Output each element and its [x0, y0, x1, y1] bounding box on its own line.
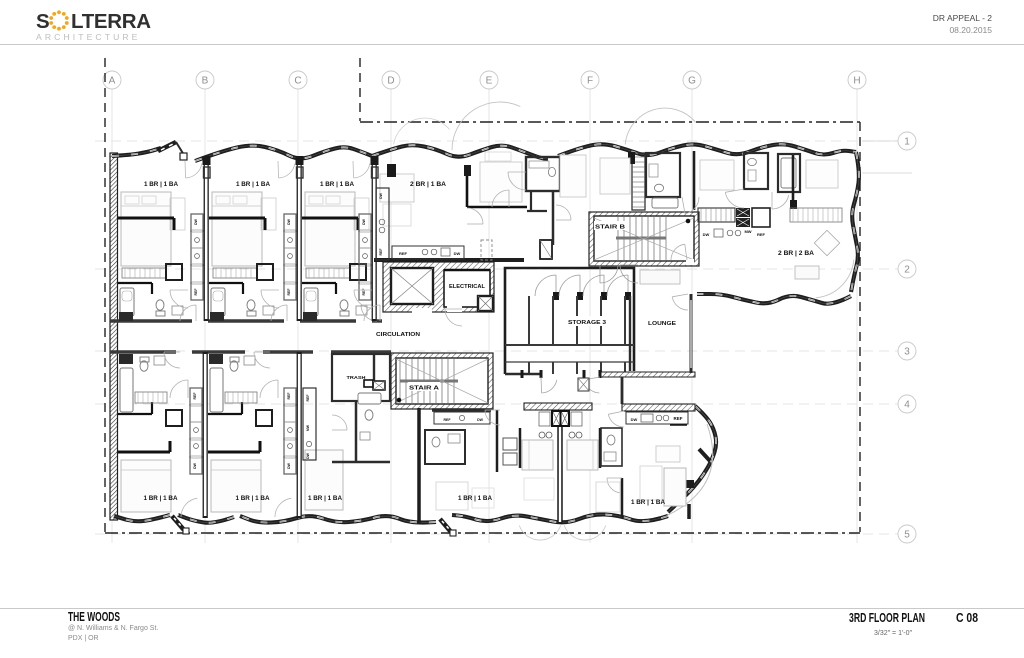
- svg-text:3RD FLOOR PLAN: 3RD FLOOR PLAN: [849, 611, 925, 625]
- svg-text:1 BR | 1 BA: 1 BR | 1 BA: [308, 495, 342, 502]
- svg-text:MW: MW: [306, 424, 310, 431]
- svg-text:G: G: [688, 76, 696, 87]
- svg-text:DW: DW: [703, 232, 710, 237]
- svg-text:DW: DW: [477, 418, 484, 422]
- svg-text:4: 4: [904, 400, 910, 411]
- svg-text:STAIR B: STAIR B: [595, 225, 625, 231]
- svg-text:REF: REF: [362, 288, 366, 296]
- svg-text:DW: DW: [193, 462, 197, 469]
- svg-text:LTERRA: LTERRA: [71, 10, 151, 33]
- svg-text:@ N. Williams & N. Fargo St.: @ N. Williams & N. Fargo St.: [68, 625, 158, 632]
- svg-text:1 BR | 1 BA: 1 BR | 1 BA: [236, 495, 270, 502]
- svg-text:PDX | OR: PDX | OR: [68, 635, 99, 642]
- svg-text:DW: DW: [362, 218, 366, 225]
- svg-text:STAIR A: STAIR A: [409, 386, 440, 392]
- svg-text:1 BR | 1 BA: 1 BR | 1 BA: [631, 499, 665, 506]
- svg-text:REF: REF: [757, 232, 766, 237]
- svg-text:MW: MW: [744, 229, 751, 234]
- svg-text:F: F: [587, 76, 593, 87]
- svg-text:1: 1: [904, 137, 910, 148]
- svg-text:REF: REF: [306, 394, 310, 402]
- svg-text:1 BR | 1 BA: 1 BR | 1 BA: [320, 181, 354, 188]
- svg-text:A: A: [109, 76, 116, 87]
- svg-text:STORAGE 3: STORAGE 3: [568, 320, 606, 326]
- svg-text:DW: DW: [379, 192, 383, 199]
- svg-text:3: 3: [904, 347, 910, 358]
- svg-text:5: 5: [904, 530, 910, 541]
- svg-text:REF: REF: [674, 416, 683, 421]
- svg-text:REF: REF: [399, 251, 408, 256]
- svg-text:REF: REF: [287, 392, 291, 400]
- svg-text:C: C: [294, 76, 301, 87]
- svg-text:THE WOODS: THE WOODS: [68, 610, 120, 624]
- svg-text:DW: DW: [306, 452, 310, 459]
- svg-text:REF: REF: [287, 288, 291, 296]
- svg-text:1 BR | 1 BA: 1 BR | 1 BA: [458, 495, 492, 502]
- svg-text:1 BR | 1 BA: 1 BR | 1 BA: [144, 181, 178, 188]
- svg-text:3/32″ = 1′-0″: 3/32″ = 1′-0″: [874, 630, 913, 637]
- svg-text:REF: REF: [194, 288, 198, 296]
- svg-text:REF: REF: [444, 418, 452, 422]
- svg-text:DW: DW: [194, 218, 198, 225]
- svg-text:LOUNGE: LOUNGE: [648, 321, 676, 327]
- svg-text:DW: DW: [454, 251, 461, 256]
- svg-text:DR APPEAL - 2: DR APPEAL - 2: [933, 13, 992, 23]
- svg-text:ELECTRICAL: ELECTRICAL: [449, 284, 485, 290]
- svg-text:REF: REF: [379, 248, 383, 256]
- svg-text:TRASH: TRASH: [347, 375, 367, 381]
- svg-text:DW: DW: [287, 462, 291, 469]
- svg-text:1 BR | 1 BA: 1 BR | 1 BA: [144, 495, 178, 502]
- svg-text:ARCHITECTURE: ARCHITECTURE: [36, 32, 141, 42]
- svg-text:DW: DW: [287, 218, 291, 225]
- svg-text:B: B: [202, 76, 209, 87]
- svg-text:REF: REF: [193, 392, 197, 400]
- svg-text:2: 2: [904, 265, 910, 276]
- svg-text:DW: DW: [631, 417, 638, 422]
- svg-text:08.20.2015: 08.20.2015: [949, 25, 992, 35]
- svg-text:2 BR | 2 BA: 2 BR | 2 BA: [778, 250, 814, 257]
- svg-text:E: E: [486, 76, 493, 87]
- svg-text:D: D: [387, 76, 394, 87]
- svg-text:S: S: [36, 10, 50, 33]
- svg-text:CIRCULATION: CIRCULATION: [376, 332, 420, 338]
- svg-text:C 08: C 08: [956, 611, 978, 625]
- svg-text:2 BR | 1 BA: 2 BR | 1 BA: [410, 181, 446, 188]
- svg-text:H: H: [853, 76, 860, 87]
- svg-text:1 BR | 1 BA: 1 BR | 1 BA: [236, 181, 270, 188]
